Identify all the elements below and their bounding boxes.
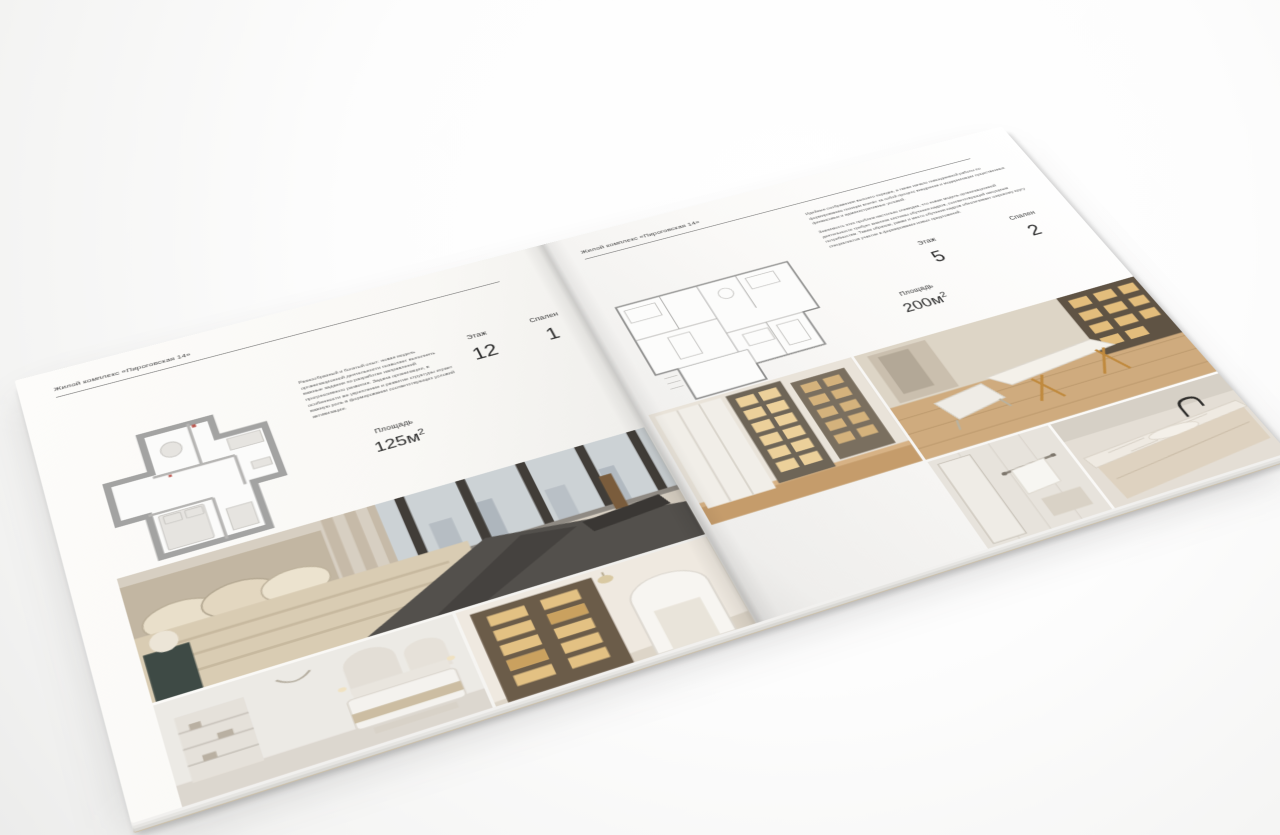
scene: Жилой комплекс «Пироговская 14» — [0, 0, 1280, 835]
right-page-header: Жилой комплекс «Пироговская 14» — [579, 219, 701, 255]
left-page-header: Жилой комплекс «Пироговская 14» — [53, 351, 192, 392]
brochure-spread: Жилой комплекс «Пироговская 14» — [15, 126, 1280, 823]
left-floor-stat: Этаж 12 — [444, 323, 520, 368]
right-area-stat: Площадь 200м2 — [873, 275, 973, 321]
left-description: Разнообразный и богатый опыт: новая моде… — [298, 341, 462, 420]
left-area-stat: Площадь 125м2 — [347, 410, 450, 462]
right-floor-stat: Этаж 5 — [897, 230, 972, 271]
left-bedrooms-stat: Спален 1 — [516, 307, 583, 349]
right-bedrooms-stat: Спален 2 — [997, 206, 1064, 244]
